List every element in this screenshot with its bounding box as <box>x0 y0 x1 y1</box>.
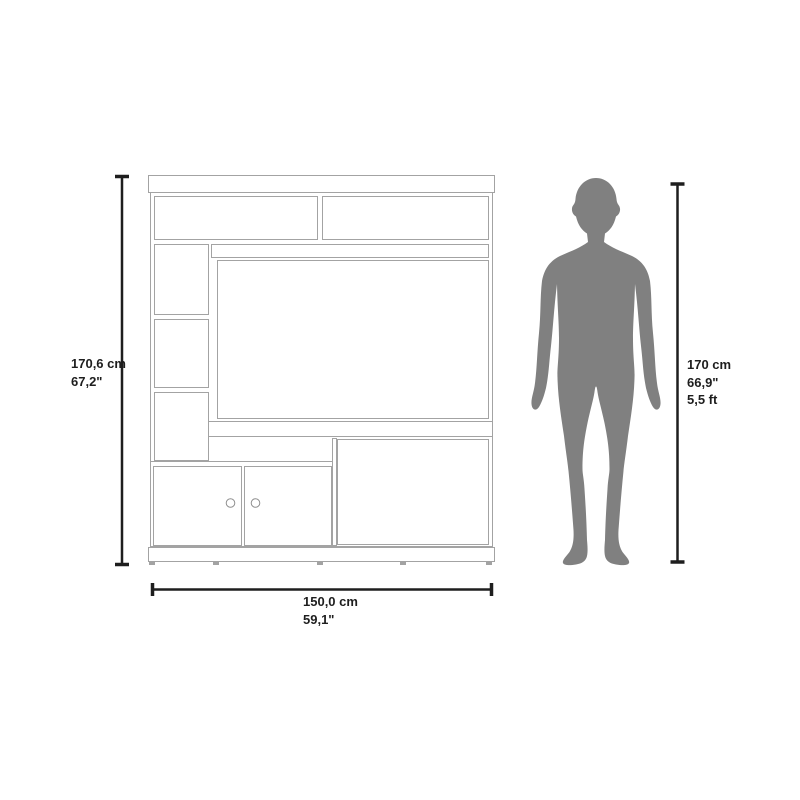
diagram-canvas <box>0 0 800 800</box>
top-shelf-right <box>323 197 489 240</box>
door-knob-right-icon <box>251 499 260 508</box>
open-compartment <box>338 440 489 545</box>
furniture-body-outline <box>151 193 493 547</box>
side-shelf-bottom <box>155 393 209 461</box>
furniture-height-label: 170,6 cm 67,2" <box>71 355 126 390</box>
side-shelf-middle <box>155 320 209 388</box>
furniture-width-cm: 150,0 cm <box>303 593 358 611</box>
base-panel <box>149 548 495 562</box>
person-height-label: 170 cm 66,9" 5,5 ft <box>687 356 731 409</box>
top-shelf-left <box>155 197 318 240</box>
media-shelf <box>209 422 493 437</box>
product-dimension-diagram: 170,6 cm 67,2" 150,0 cm 59,1" 170 cm 66,… <box>0 0 800 800</box>
tv-compartment <box>218 261 489 419</box>
bottom-center-divider <box>333 439 337 546</box>
standing-person-silhouette-icon <box>531 178 660 565</box>
furniture-width-inches: 59,1" <box>303 611 358 629</box>
furniture-height-cm: 170,6 cm <box>71 355 126 373</box>
furniture-feet <box>149 562 492 565</box>
cabinet-door-right <box>245 467 332 546</box>
furniture-height-inches: 67,2" <box>71 373 126 391</box>
furniture-width-label: 150,0 cm 59,1" <box>303 593 358 628</box>
person-height-inches: 66,9" <box>687 374 731 392</box>
door-knob-left-icon <box>226 499 235 508</box>
person-height-feet: 5,5 ft <box>687 391 731 409</box>
cabinet-door-left <box>154 467 242 546</box>
side-shelf-top <box>155 245 209 315</box>
entertainment-center-drawing <box>149 176 495 566</box>
person-height-dimension-line <box>671 184 685 562</box>
person-height-cm: 170 cm <box>687 356 731 374</box>
furniture-top-panel <box>149 176 495 193</box>
tv-compartment-top-rail <box>212 245 489 258</box>
